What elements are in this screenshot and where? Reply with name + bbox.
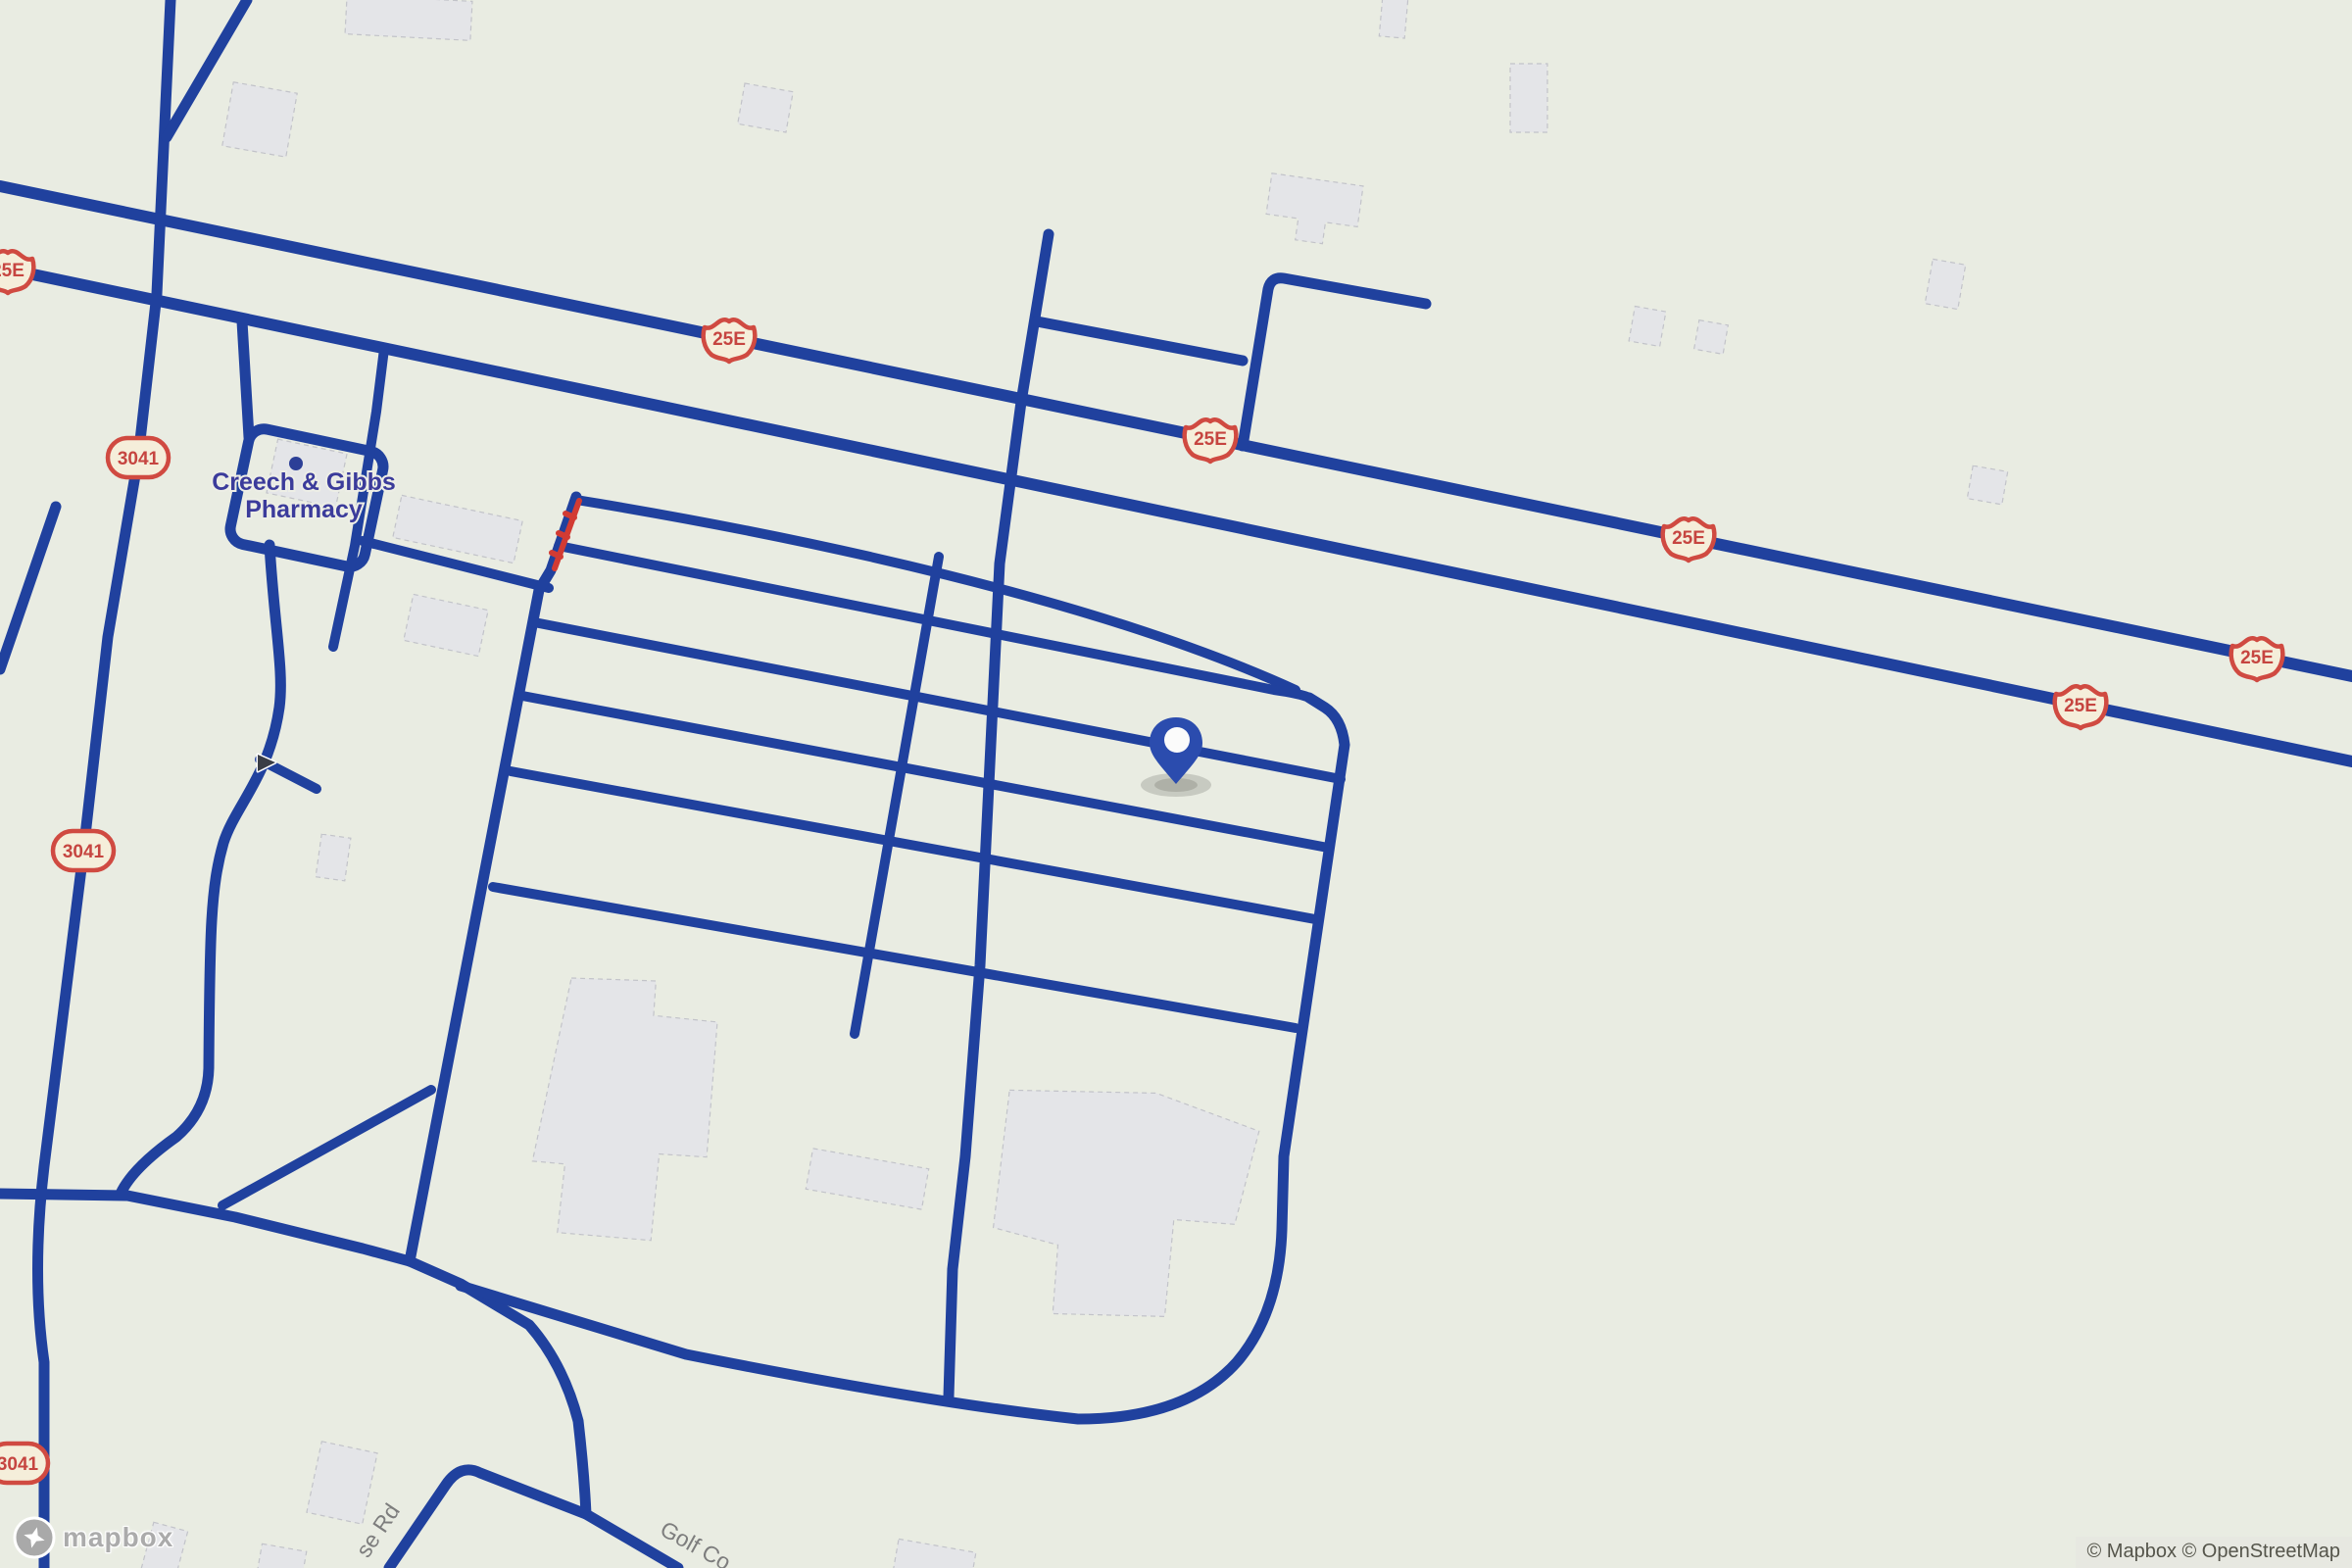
svg-text:25E: 25E bbox=[2240, 648, 2274, 668]
svg-text:25E: 25E bbox=[1672, 528, 1705, 549]
building bbox=[345, 0, 472, 40]
svg-text:25E: 25E bbox=[0, 261, 24, 281]
svg-text:25E: 25E bbox=[2064, 696, 2097, 716]
building bbox=[1629, 306, 1666, 346]
map-canvas[interactable]: Creech & Gibbs Pharmacy se Rd Golf Co 25… bbox=[0, 0, 2352, 1568]
building bbox=[1510, 64, 1547, 132]
route-shield-3041: 3041 bbox=[53, 831, 114, 870]
pharmacy-label-line2: Pharmacy bbox=[245, 496, 363, 523]
svg-text:3041: 3041 bbox=[118, 449, 160, 469]
route-shield-3041: 3041 bbox=[108, 438, 169, 477]
route-shield-25e: 25E bbox=[1185, 419, 1237, 462]
svg-text:3041: 3041 bbox=[63, 842, 105, 862]
building bbox=[222, 82, 297, 157]
map-container[interactable]: Creech & Gibbs Pharmacy se Rd Golf Co 25… bbox=[0, 0, 2352, 1568]
route-shield-3041-partial: 3041 bbox=[0, 1444, 48, 1483]
svg-text:3041: 3041 bbox=[0, 1454, 39, 1475]
mapbox-logo-wordmark: mapbox bbox=[63, 1522, 173, 1553]
pharmacy-loop-connector bbox=[242, 321, 249, 437]
route-shield-25e: 25E bbox=[704, 319, 756, 362]
mapbox-logo-icon bbox=[12, 1515, 57, 1560]
route-shield-25e: 25E bbox=[2231, 638, 2283, 680]
route-shield-25e: 25E bbox=[2055, 686, 2107, 728]
map-attribution[interactable]: © Mapbox © OpenStreetMap bbox=[2076, 1537, 2352, 1568]
building bbox=[1694, 320, 1729, 355]
pharmacy-label-line1: Creech & Gibbs bbox=[212, 468, 396, 496]
svg-text:25E: 25E bbox=[1194, 429, 1227, 450]
building bbox=[316, 834, 351, 881]
mapbox-logo[interactable]: mapbox bbox=[12, 1515, 173, 1560]
building bbox=[1379, 0, 1407, 38]
route-shield-25e: 25E bbox=[1663, 518, 1715, 561]
svg-text:25E: 25E bbox=[712, 329, 746, 350]
building bbox=[1967, 465, 2007, 505]
building bbox=[738, 83, 794, 132]
